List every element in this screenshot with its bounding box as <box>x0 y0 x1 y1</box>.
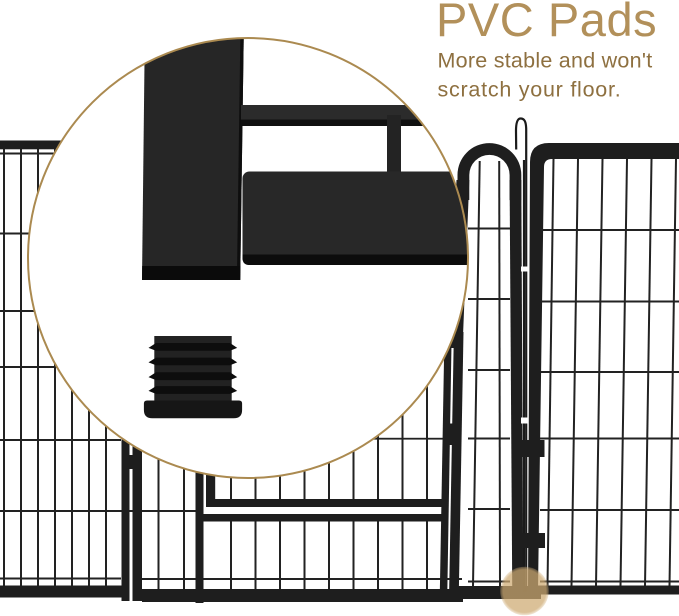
svg-text:scratch your floor.: scratch your floor. <box>438 78 622 102</box>
svg-text:More stable and won't: More stable and won't <box>438 49 653 73</box>
svg-text:PVC Pads: PVC Pads <box>436 0 657 46</box>
